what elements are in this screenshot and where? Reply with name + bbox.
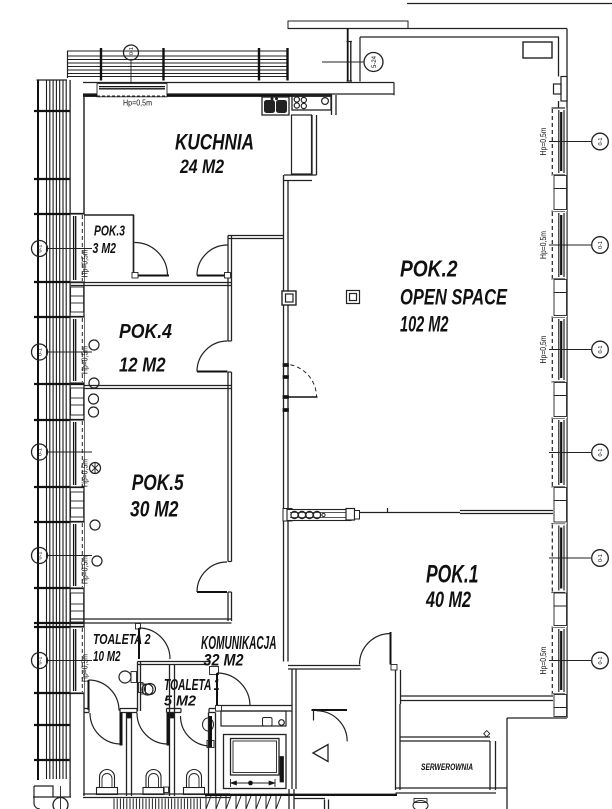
- svg-text:3 M2: 3 M2: [93, 240, 117, 257]
- svg-text:0-1: 0-1: [598, 241, 604, 249]
- svg-text:POK.3: POK.3: [94, 223, 125, 240]
- svg-text:Hp=0,5m: Hp=0,5m: [81, 346, 90, 374]
- svg-text:SERWEROWNIA: SERWEROWNIA: [421, 762, 473, 773]
- svg-text:POK.5: POK.5: [132, 470, 184, 495]
- svg-text:0-1: 0-1: [598, 657, 604, 665]
- svg-text:0-1: 0-1: [38, 552, 44, 560]
- svg-text:32 M2: 32 M2: [204, 651, 244, 670]
- svg-text:Hp=0,5m: Hp=0,5m: [81, 459, 90, 487]
- svg-text:TOALETA 1: TOALETA 1: [164, 677, 220, 694]
- svg-text:0-1: 0-1: [38, 348, 44, 356]
- svg-text:10 M2: 10 M2: [93, 649, 121, 665]
- svg-text:0-1: 0-1: [598, 138, 604, 146]
- svg-text:POK.2: POK.2: [400, 256, 458, 282]
- svg-text:0-1: 0-1: [38, 448, 44, 456]
- svg-text:OPEN SPACE: OPEN SPACE: [400, 285, 508, 310]
- svg-text:Hp=0,5m: Hp=0,5m: [81, 556, 90, 584]
- svg-text:Hp=0,5m: Hp=0,5m: [81, 249, 90, 277]
- svg-text:TOALETA 2: TOALETA 2: [93, 632, 151, 648]
- svg-text:Hp=0,5m: Hp=0,5m: [539, 127, 548, 155]
- svg-text:POK.1: POK.1: [426, 561, 479, 589]
- svg-text:Hp=0,5m: Hp=0,5m: [539, 335, 548, 363]
- svg-text:0-1: 0-1: [38, 245, 44, 253]
- svg-text:0-1: 0-1: [598, 346, 604, 354]
- svg-text:0-1: 0-1: [129, 47, 135, 55]
- svg-text:KUCHNIA: KUCHNIA: [175, 130, 254, 155]
- svg-text:40 M2: 40 M2: [425, 587, 471, 612]
- svg-text:30 M2: 30 M2: [130, 497, 179, 522]
- svg-text:0-1: 0-1: [38, 657, 44, 665]
- svg-text:24 M2: 24 M2: [179, 157, 224, 178]
- svg-text:12 M2: 12 M2: [119, 355, 166, 377]
- svg-text:5-24: 5-24: [372, 55, 378, 68]
- svg-text:Hp=0,5m: Hp=0,5m: [539, 231, 548, 259]
- svg-text:102 M2: 102 M2: [400, 312, 449, 337]
- svg-text:Hp=0,5m: Hp=0,5m: [123, 99, 152, 108]
- svg-text:Hp=0,5m: Hp=0,5m: [81, 654, 90, 682]
- svg-text:Hp=0,5m: Hp=0,5m: [539, 646, 548, 674]
- svg-text:POK.4: POK.4: [119, 321, 172, 343]
- svg-text:0-1: 0-1: [598, 449, 604, 457]
- svg-text:0-1: 0-1: [598, 554, 604, 562]
